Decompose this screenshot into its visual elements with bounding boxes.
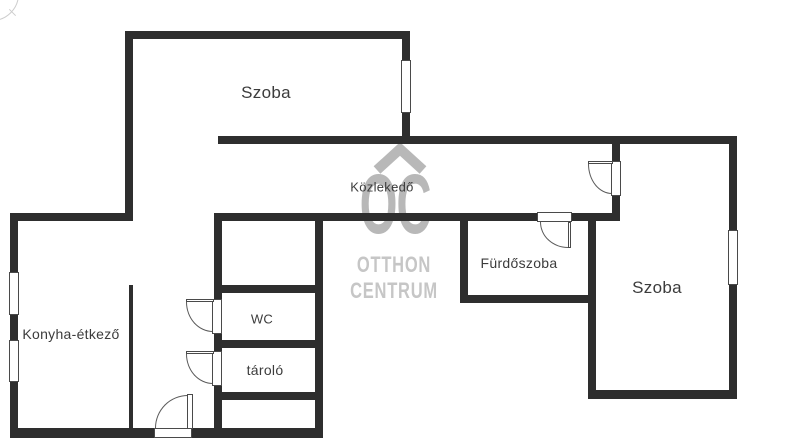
wall-kitchen-left-outer bbox=[10, 213, 18, 438]
door-opening-tarolo bbox=[212, 351, 222, 386]
door-opening-bathroom bbox=[537, 212, 572, 222]
door-opening-wc bbox=[212, 299, 222, 334]
door-leaf-corridor-to-room bbox=[588, 161, 613, 164]
watermark-brand-bottom: CENTRUM bbox=[350, 278, 438, 304]
door-leaf-entrance bbox=[187, 394, 193, 429]
door-opening-corridor-to-room bbox=[611, 161, 621, 196]
room-label-wc: WC bbox=[251, 312, 273, 327]
floor-plan-canvas: OC OTTHON CENTRUM SzobaKözlekedőFürdőszo… bbox=[0, 0, 800, 446]
door-opening-entrance bbox=[154, 428, 192, 438]
room-label-kozlekedo: Közlekedő bbox=[350, 180, 413, 195]
wall-core-divider-2 bbox=[214, 340, 323, 348]
wall-bathroom-left bbox=[460, 213, 468, 301]
door-leaf-wc bbox=[186, 299, 214, 302]
door-leaf-bathroom bbox=[568, 222, 571, 248]
window-top-room-window bbox=[401, 60, 411, 113]
watermark-brand-top: OTTHON bbox=[357, 252, 431, 278]
wall-kitchen-top bbox=[10, 213, 133, 221]
room-label-szoba-top: Szoba bbox=[241, 83, 291, 103]
wall-kitchen-partition bbox=[129, 285, 133, 430]
wall-core-right bbox=[315, 213, 323, 438]
door-leaf-tarolo bbox=[186, 351, 214, 354]
window-kitchen-window-1 bbox=[9, 272, 19, 315]
room-label-tarolo: tároló bbox=[247, 362, 284, 378]
window-right-room-window bbox=[728, 230, 738, 285]
room-label-konyha-etkezo: Konyha-étkező bbox=[22, 326, 119, 342]
wall-top-room-top bbox=[125, 31, 410, 39]
room-label-furdoszoba: Fürdőszoba bbox=[481, 255, 558, 271]
wall-top-room-left bbox=[125, 31, 133, 221]
wall-bathroom-right bbox=[588, 213, 596, 399]
wall-corridor-top bbox=[218, 136, 737, 144]
window-kitchen-window-2 bbox=[9, 340, 19, 382]
wall-right-room-bottom bbox=[588, 390, 737, 399]
otthon-centrum-watermark: OC OTTHON CENTRUM bbox=[0, 0, 800, 446]
wall-core-divider-1 bbox=[214, 285, 323, 293]
room-label-szoba-right: Szoba bbox=[632, 278, 682, 298]
wall-bathroom-bottom bbox=[460, 295, 596, 303]
wall-core-divider-3 bbox=[214, 392, 323, 400]
